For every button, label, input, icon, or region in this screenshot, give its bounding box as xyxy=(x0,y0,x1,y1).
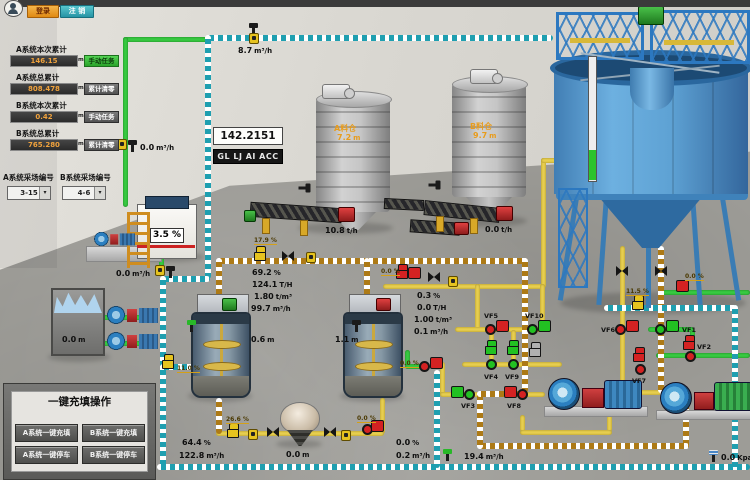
pump-b-coupling xyxy=(694,392,714,410)
line-b-flow: 0.1m³/h xyxy=(414,327,448,336)
silo-a-level: 7.2m xyxy=(337,133,360,142)
right-control-valve[interactable] xyxy=(632,295,644,310)
conveyor-support xyxy=(436,216,444,232)
mixer2-blade xyxy=(355,362,393,371)
totalizer-display: 142.2151 xyxy=(213,127,283,145)
a-line-control-valve[interactable] xyxy=(254,246,266,261)
hopper-level-label: 0.0m xyxy=(286,450,309,459)
vf2-control-valve[interactable] xyxy=(683,335,695,350)
silo-b xyxy=(452,83,526,197)
water-bin xyxy=(51,288,105,356)
reset-total-a-button[interactable]: 累计清零 xyxy=(84,83,119,95)
mixer-feed-tag: 11.0 % xyxy=(177,365,200,373)
login-button[interactable]: 登录 xyxy=(27,5,59,18)
vf4-control-valve[interactable] xyxy=(485,340,497,355)
thickener-level-fill xyxy=(589,150,596,180)
mixer1-level-label: 0.6m xyxy=(251,335,274,344)
reset-total-b-button[interactable]: 累计清零 xyxy=(84,139,119,151)
hopper-dome xyxy=(280,402,320,434)
mixer1-motor-icon xyxy=(222,298,237,311)
flow-meter-icon[interactable] xyxy=(155,265,165,276)
mixer2-level-sensor-icon xyxy=(352,320,361,332)
conveyor-support xyxy=(470,218,478,234)
vf2-valve[interactable] xyxy=(685,351,696,362)
silo-a xyxy=(316,98,390,212)
vf5-pump-icon[interactable] xyxy=(496,320,509,332)
thickener-drive-motor-icon xyxy=(638,6,664,25)
mixer-feed-valve[interactable] xyxy=(162,354,174,369)
vf8-valve[interactable] xyxy=(517,389,528,400)
manual-task-a-button[interactable]: 手动任务 xyxy=(84,55,119,67)
pressure-sensor-icon xyxy=(709,450,718,462)
vf4-valve[interactable] xyxy=(486,359,497,370)
acc-row2-label: A系统总累计 xyxy=(16,72,59,83)
vf3-label: VF3 xyxy=(461,402,475,410)
mixer2-out-tag: 0.0 % xyxy=(400,360,419,368)
vf10-label: VF10 xyxy=(525,312,544,320)
site-a-value: 3-15 xyxy=(20,189,38,197)
fill-line-control-valve[interactable] xyxy=(227,423,239,438)
mixer1-sludge xyxy=(193,376,249,396)
acc-row3-label: B系统本次累计 xyxy=(16,100,67,111)
silo-b-motor-icon xyxy=(470,69,498,84)
totalizer-code: GL LJ AI ACC xyxy=(213,149,283,164)
vf5-label: VF5 xyxy=(484,312,498,320)
pump-b-volute xyxy=(660,382,692,414)
vf10-pump-icon[interactable] xyxy=(538,320,551,332)
flow-left-lower-label: 0.0m³/h xyxy=(116,269,150,278)
pipe-water xyxy=(205,35,211,279)
line-b-pct: 0.3% xyxy=(417,291,440,300)
b-out-flow-label: 0.2m³/h xyxy=(396,451,430,460)
user-avatar-icon xyxy=(4,0,23,17)
mixer1-level-sensor-icon xyxy=(187,320,196,332)
conveyor-support xyxy=(300,220,308,236)
manual-valve-icon[interactable] xyxy=(324,427,336,437)
feed-pump-2 xyxy=(106,330,160,352)
flow-sensor-icon xyxy=(128,140,137,152)
bottom-out-tag: 0.0 % xyxy=(357,415,376,423)
mixer2-motor-icon xyxy=(376,298,391,311)
pipe-yellow xyxy=(475,284,480,332)
pipe-water xyxy=(160,276,166,468)
acc-row2-value: 808.478 xyxy=(10,83,78,95)
drain-flow-sensor-icon xyxy=(443,449,452,461)
silo-a-rate-label: 10.8t/h xyxy=(325,226,358,235)
vf3-pump-icon[interactable] xyxy=(451,386,464,398)
pipe-yellow xyxy=(383,284,545,289)
mixer2-level-label: 1.1m xyxy=(335,335,358,344)
pipe-water xyxy=(157,464,750,470)
right-valve-tag: 11.5 % xyxy=(626,288,649,296)
bin-level-label: 0.0m xyxy=(62,335,85,344)
mixer2-blade xyxy=(355,340,393,349)
pump-b-motor xyxy=(714,382,750,411)
mixer1-blade xyxy=(203,362,241,371)
conveyor-a-tail-motor-icon xyxy=(244,210,256,222)
thickener-bridge-right xyxy=(650,10,750,64)
thickener-feedwell xyxy=(630,68,674,110)
vf1-pump-icon[interactable] xyxy=(666,320,679,332)
manual-valve-icon[interactable] xyxy=(655,266,667,276)
silo-b-level-sensor-icon xyxy=(429,181,441,190)
conveyor-b2-motor-icon xyxy=(454,222,469,235)
logout-button[interactable]: 注 销 xyxy=(60,5,94,18)
vf7-label: VF7 xyxy=(632,377,646,385)
line-a-pct: 69.2% xyxy=(252,268,281,277)
vf7-valve[interactable] xyxy=(635,364,646,375)
b-one-key-stop-button[interactable]: B系统一键停车 xyxy=(82,446,145,464)
mixer1-blade xyxy=(203,340,241,349)
a-valve-tag: 17.9 % xyxy=(254,237,277,245)
manual-valve-icon[interactable] xyxy=(428,272,440,282)
thickener-bridge-left xyxy=(556,12,644,60)
spare-control-valve[interactable] xyxy=(529,342,541,357)
site-a-select[interactable]: 3-15▾ xyxy=(7,186,51,200)
manual-valve-icon[interactable] xyxy=(616,266,628,276)
pipe-water xyxy=(434,370,440,468)
manual-valve-icon[interactable] xyxy=(267,427,279,437)
line-a-flow: 99.7m³/h xyxy=(251,304,291,313)
vf7-control-valve[interactable] xyxy=(633,347,645,362)
one-key-panel-title: 一键充填操作 xyxy=(4,394,155,409)
vf3-valve[interactable] xyxy=(464,389,475,400)
conveyor-support xyxy=(262,218,270,234)
hmi-screen: 登录 注 销 A系统本次累计 146.15 m³ 手动任务 A系统总累计 808… xyxy=(0,0,750,480)
fill-pct-label: 64.4% xyxy=(182,438,211,447)
chevron-down-icon[interactable]: ▾ xyxy=(39,187,50,199)
mixer1-tank xyxy=(191,312,251,398)
pipe-green xyxy=(123,37,207,42)
vf6-pump-icon[interactable] xyxy=(626,320,639,332)
conveyor-a-motor-icon xyxy=(338,207,355,222)
silo-b-level: 9.7m xyxy=(473,131,496,140)
acc-row3-value: 0.42 xyxy=(10,111,78,123)
pipe-slurry xyxy=(477,391,483,449)
pressure-label: 0.0Kpa xyxy=(721,453,750,462)
acc-row4-value: 765.280 xyxy=(10,139,78,151)
acc-row1-label: A系统本次累计 xyxy=(16,44,67,55)
flow-meter-icon[interactable] xyxy=(248,429,258,440)
pipe-water xyxy=(604,305,738,311)
b-valve-tag: 0.0 % xyxy=(381,268,400,276)
right-pump-tag: 0.0 % xyxy=(685,273,704,281)
mixer2-sludge xyxy=(345,376,401,396)
density-meter-icon[interactable] xyxy=(306,252,316,263)
agent-tank-equipment xyxy=(145,196,189,209)
agent-tank-level: 3.5 % xyxy=(150,228,184,243)
acc-row1-value: 146.15 xyxy=(10,55,78,67)
silo-a-motor-icon xyxy=(322,84,350,99)
pipe-green xyxy=(123,37,128,207)
manual-valve-icon[interactable] xyxy=(282,251,294,261)
vf8-pump-icon[interactable] xyxy=(504,386,517,398)
vf6-label: VF6 xyxy=(601,326,615,334)
mixer2-out-pump-icon[interactable] xyxy=(430,357,443,369)
site-b-label: B系统采场编号 xyxy=(60,172,111,183)
conveyor-mid xyxy=(384,198,425,211)
acc-row4-label: B系统总累计 xyxy=(16,128,59,139)
a-one-key-fill-button[interactable]: A系统一键充填 xyxy=(15,424,78,442)
vf9-valve[interactable] xyxy=(508,359,519,370)
bridge-walkway xyxy=(664,40,734,45)
flow-sensor-icon xyxy=(166,266,175,278)
pump-a-coupling xyxy=(582,388,604,408)
silo-a-level-sensor-icon xyxy=(299,184,311,193)
pipe-slurry xyxy=(216,398,222,434)
pipe-slurry xyxy=(477,443,689,449)
bottom-valve-tag: 26.6 % xyxy=(226,416,249,424)
vf10-valve[interactable] xyxy=(527,324,538,335)
vf9-control-valve[interactable] xyxy=(507,340,519,355)
drain-flow-label: 19.4m³/h xyxy=(464,452,504,461)
feed-pump-1 xyxy=(106,304,160,326)
flow-left-upper-label: 0.0m³/h xyxy=(140,143,174,152)
site-b-value: 4-6 xyxy=(78,189,91,197)
top-bar xyxy=(18,0,750,7)
b-out-pct-label: 0.0% xyxy=(396,438,419,447)
vf1-valve[interactable] xyxy=(655,324,666,335)
flow-meter-icon[interactable] xyxy=(448,276,458,287)
pipe-yellow xyxy=(520,430,612,435)
b-line-pump-icon[interactable] xyxy=(408,267,421,279)
vf4-label: VF4 xyxy=(484,373,498,381)
dosing-pump-set xyxy=(93,230,136,248)
fill-flow-label: 122.8m³/h xyxy=(179,451,224,460)
vf1-label: VF1 xyxy=(682,326,696,334)
flow-top-label: 8.7m³/h xyxy=(238,46,272,55)
chevron-down-icon[interactable]: ▾ xyxy=(94,187,105,199)
vf9-label: VF9 xyxy=(505,373,519,381)
b-one-key-fill-button[interactable]: B系统一键充填 xyxy=(82,424,145,442)
pump-a-volute xyxy=(548,378,580,410)
one-key-panel: 一键充填操作 A系统一键充填 B系统一键充填 A系统一键停车 B系统一键停车 xyxy=(3,383,156,480)
conveyor-b-motor-icon xyxy=(496,206,513,221)
vf2-label: VF2 xyxy=(697,343,711,351)
line-a-tph: 124.1T/H xyxy=(252,280,293,289)
line-b-density: 1.00t/m³ xyxy=(414,315,452,324)
bridge-walkway xyxy=(570,38,630,43)
a-one-key-stop-button[interactable]: A系统一键停车 xyxy=(15,446,78,464)
flow-meter-icon[interactable] xyxy=(341,430,351,441)
site-a-label: A系统采场编号 xyxy=(3,172,54,183)
line-b-tph: 0.0T/H xyxy=(417,303,446,312)
line-a-density: 1.80t/m³ xyxy=(254,292,292,301)
silo-b-rate-label: 0.0t/h xyxy=(485,225,512,234)
manual-task-b-button[interactable]: 手动任务 xyxy=(84,111,119,123)
flow-meter-icon[interactable] xyxy=(249,33,259,44)
vf5-valve[interactable] xyxy=(485,324,496,335)
vf6-valve[interactable] xyxy=(615,324,626,335)
mixer2-out-valve[interactable] xyxy=(419,361,430,372)
site-b-select[interactable]: 4-6▾ xyxy=(62,186,106,200)
thickener-stair-tower xyxy=(558,188,588,288)
right-pump-icon[interactable] xyxy=(676,280,689,292)
vf8-label: VF8 xyxy=(507,402,521,410)
pipe-yellow xyxy=(541,158,546,288)
mixer1-top xyxy=(193,314,249,324)
